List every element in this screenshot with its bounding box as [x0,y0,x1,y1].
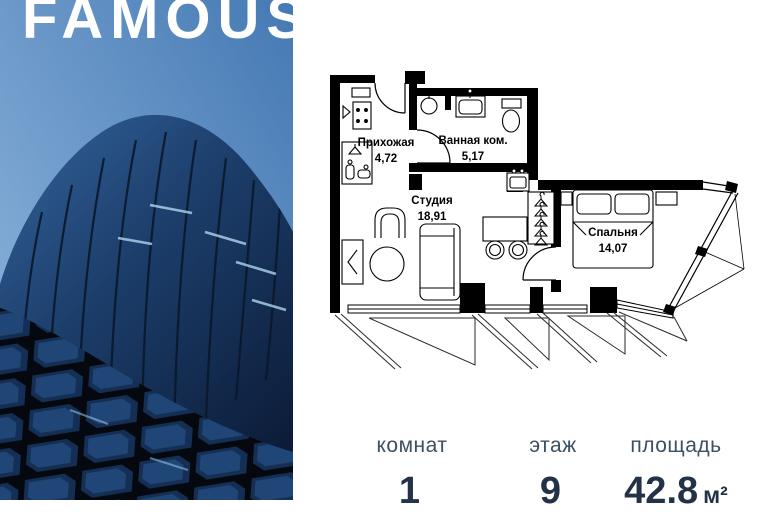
pedestal-basin [421,98,437,114]
brand-logo: FAMOUS [22,0,293,52]
stat-label-area: площадь [624,434,728,458]
stat-area: площадь 42.8м² [624,434,728,513]
hallway-fixtures [342,88,372,184]
entrance-door [375,83,405,113]
room-label-studio: Студия [411,195,452,207]
room-label-bathroom: Ванная ком. [438,135,507,147]
stats-row: комнат 1 этаж 9 площадь 42.8м² [293,430,770,500]
stat-value-area: 42.8м² [624,470,728,513]
room-area-hallway: 4,72 [375,153,397,165]
stat-rooms: комнат 1 [377,434,448,513]
toilet-tank [502,99,521,108]
stat-label-floor: этаж [529,434,576,458]
nightstand [561,192,572,205]
room-label-hallway: Прихожая [358,137,415,149]
shoe [346,165,354,179]
hall-shelf [352,88,370,97]
stat-label-rooms: комнат [377,434,448,458]
hall-cabinet [353,102,371,129]
toilet-bowl [503,110,520,132]
shoe [358,170,370,178]
room-area-bedroom: 14,07 [599,243,628,255]
building-art [0,0,293,500]
kitchen-counter [483,217,527,241]
round-table [370,247,404,281]
building-photo: FAMOUS [0,0,293,500]
pillow [577,194,611,214]
pillow [615,194,649,214]
room-label-bedroom: Спальня [588,227,638,239]
stat-value-rooms: 1 [377,470,448,513]
windows [348,300,673,318]
studio-furniture [342,192,554,300]
facade-panels [335,312,687,369]
wall-panel [342,240,363,284]
room-area-bathroom: 5,17 [462,151,484,163]
armchair [375,208,405,238]
floor-plan: Прихожая 4,72 Ванная ком. 5,17 Студия 18… [325,62,745,432]
nightstand [656,192,677,205]
room-area-studio: 18,91 [418,211,447,223]
stat-floor: этаж 9 [529,434,576,513]
stat-value-floor: 9 [529,470,576,513]
bedroom-door [523,247,556,280]
